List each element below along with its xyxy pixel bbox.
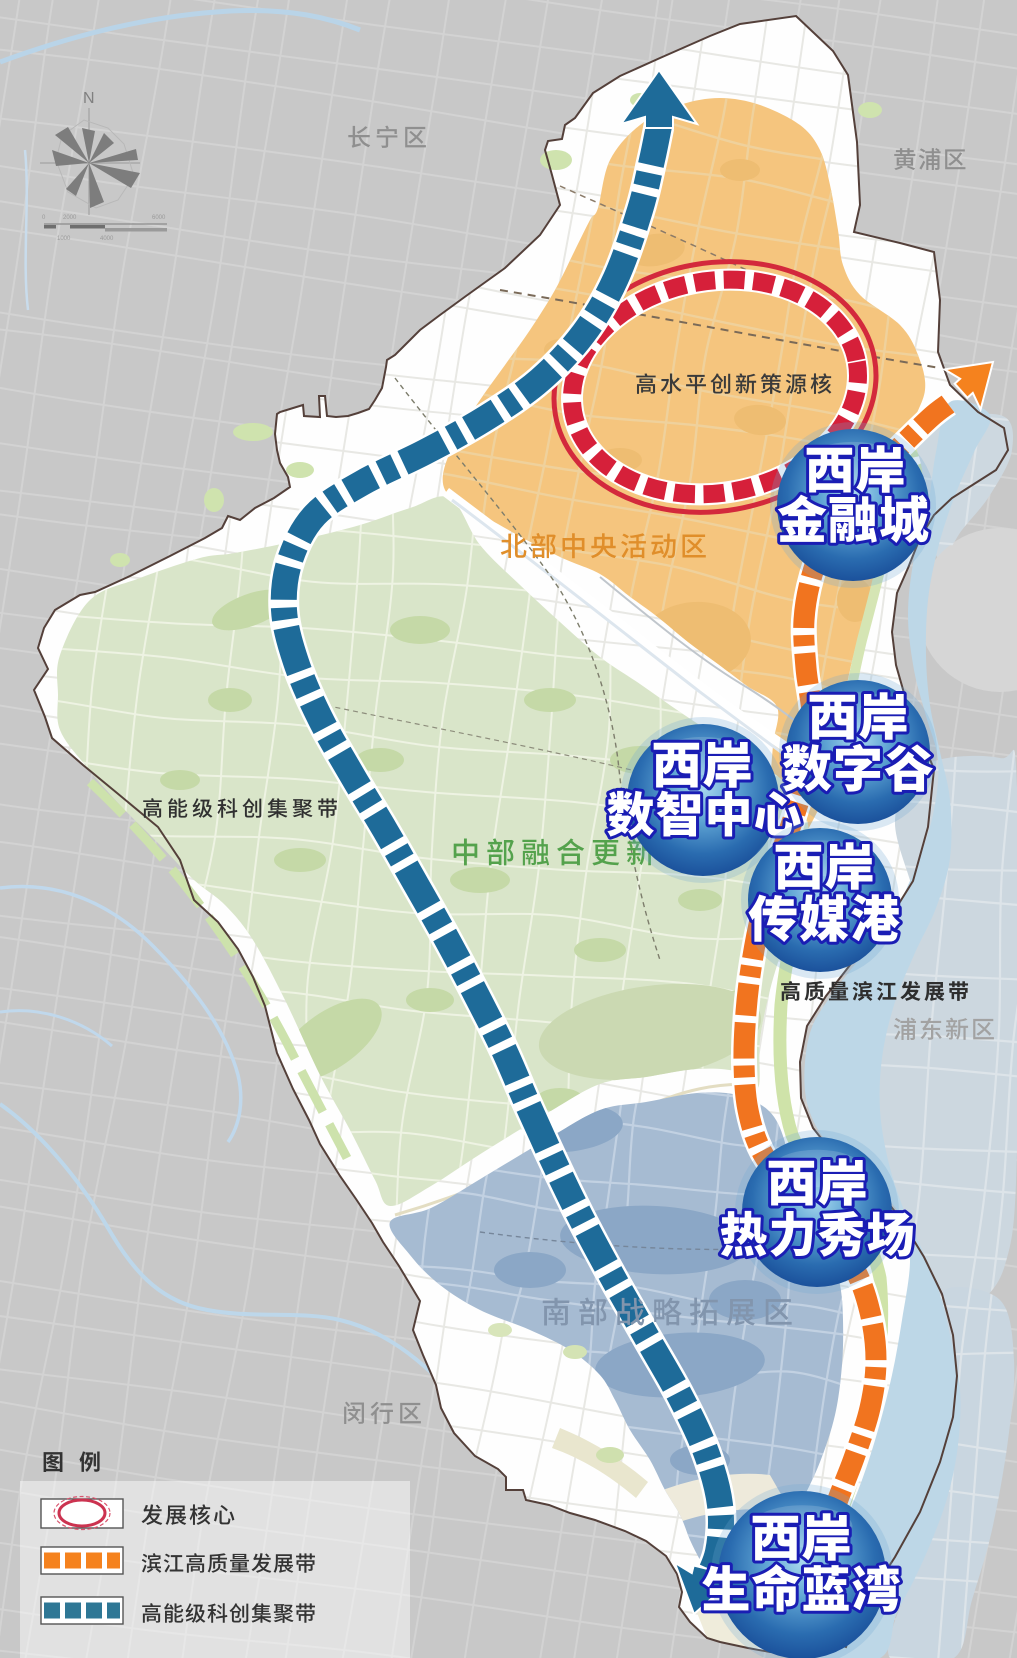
svg-text:1000: 1000: [57, 236, 71, 242]
svg-text:4000: 4000: [100, 236, 114, 242]
svg-text:N: N: [83, 90, 95, 107]
svg-text:6000: 6000: [152, 215, 166, 221]
svg-text:2000: 2000: [63, 215, 77, 221]
